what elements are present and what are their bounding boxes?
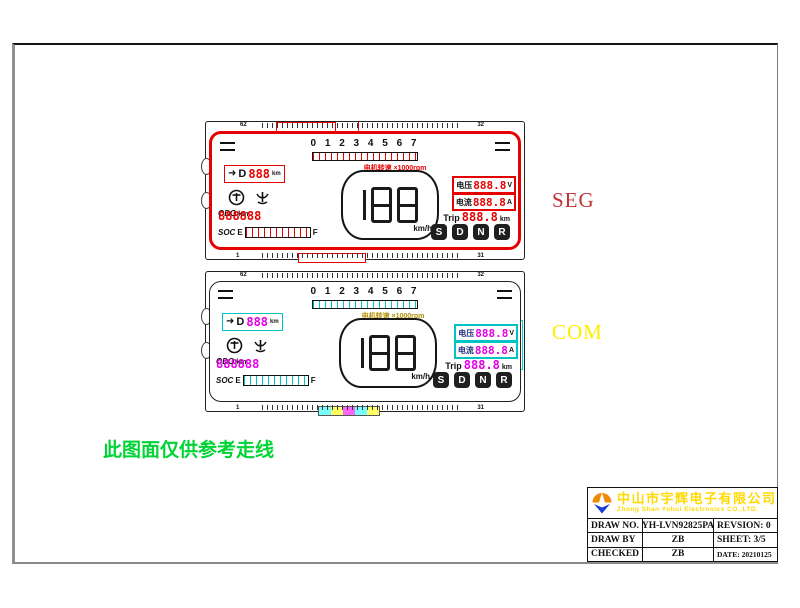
title-row: DRAW NO. YH-LVN92825PA REVSION: 0 — [588, 519, 777, 533]
seven-seg-digit-8 — [397, 187, 418, 223]
indicator-icons — [228, 189, 271, 206]
motor-warning-icon — [254, 189, 271, 206]
voltage-unit: V — [507, 182, 512, 189]
draw-no-value: YH-LVN92825PA — [643, 519, 714, 532]
pin-number: 31 — [477, 253, 484, 259]
gear-box-s: S — [431, 224, 447, 240]
trip-value: 888.8 — [462, 210, 498, 224]
pin-number: 32 — [477, 122, 484, 128]
revision-cell: REVSION: 0 — [714, 519, 777, 532]
speed-display: km/h — [341, 170, 439, 240]
seven-seg-digit-1 — [361, 338, 364, 368]
title-row: CHECKED BY ZB DATE: 20210125 — [588, 548, 777, 561]
soc-bar — [243, 375, 309, 386]
company-header: 中山市宇辉电子有限公司 Zhong Shan Yuhui Electronics… — [588, 488, 777, 518]
assist-gear-display: ➜ D 888 km — [224, 165, 285, 183]
seg-lcd-drawing: 62 32 0 1 2 3 4 5 6 7 ➜ D 888 km 电机转速 ×1… — [205, 121, 525, 260]
headlight-indicator-icon — [226, 337, 243, 354]
pin-number: 1 — [236, 253, 239, 259]
align-mark — [218, 290, 233, 299]
arrow-icon: ➜ — [228, 169, 236, 179]
company-name-en: Zhong Shan Yuhui Electronics CO.,LTD. — [617, 507, 777, 514]
gear-unit: km — [270, 319, 279, 325]
gear-box-r: R — [496, 372, 512, 388]
gear-letter: D — [238, 168, 246, 180]
soc-bar — [245, 227, 311, 238]
odo-label: ODO — [218, 209, 236, 218]
seven-seg-digit-8 — [369, 335, 390, 371]
com-lcd-drawing: 62 32 0 1 2 3 4 5 6 7 ➜ D 888 km 电机转速 ×1… — [205, 271, 525, 412]
trip-display: Trip 888.8 km — [445, 358, 512, 372]
trip-unit: km — [500, 216, 510, 223]
voltage-value: 888.8 — [473, 179, 506, 192]
gear-indicator-row: S D N R — [433, 372, 512, 388]
soc-empty-mark: E — [235, 376, 240, 385]
current-value: 888.8 — [475, 344, 508, 357]
soc-gauge: SOC E F — [216, 375, 316, 386]
seven-seg-digit-1 — [363, 190, 366, 220]
soc-gauge: SOC E F — [218, 227, 318, 238]
align-mark — [497, 290, 512, 299]
checked-by-value: ZB — [643, 548, 714, 561]
bottom-pin-strip — [262, 253, 462, 258]
odometer-display: ODO 888888 km — [216, 357, 246, 366]
trip-value: 888.8 — [464, 358, 500, 372]
top-pin-strip — [262, 123, 462, 128]
soc-label: SOC — [218, 228, 235, 237]
headlight-indicator-icon — [228, 189, 245, 206]
date-cell: DATE: 20210125 — [714, 548, 777, 561]
trip-label: Trip — [443, 213, 460, 223]
current-display: 电流 888.8 A — [452, 193, 516, 211]
draw-by-value: ZB — [643, 533, 714, 546]
pin-number: 62 — [240, 122, 247, 128]
checked-by-label: CHECKED BY — [588, 548, 643, 561]
current-label: 电流 — [456, 197, 472, 208]
gear-box-n: N — [475, 372, 491, 388]
trip-label: Trip — [445, 361, 462, 371]
seg-annotation: SEG — [552, 188, 595, 213]
odometer-display: ODO 888888 km — [218, 209, 248, 218]
draw-no-label: DRAW NO. — [588, 519, 643, 532]
com-annotation: COM — [552, 320, 603, 345]
current-unit: A — [509, 347, 514, 354]
gear-value: 888 — [246, 315, 268, 329]
voltage-unit: V — [509, 330, 514, 337]
title-row: DRAW BY ZB SHEET: 3/5 — [588, 533, 777, 547]
gear-box-n: N — [473, 224, 489, 240]
pin-number: 62 — [240, 272, 247, 278]
speed-unit: km/h — [411, 372, 430, 381]
mode-digit-row: 0 1 2 3 4 5 6 7 — [311, 286, 420, 297]
align-mark — [495, 142, 510, 151]
align-mark — [220, 142, 235, 151]
seven-seg-digit-8 — [371, 187, 392, 223]
bottom-pin-strip — [262, 405, 462, 410]
title-table: DRAW NO. YH-LVN92825PA REVSION: 0 DRAW B… — [588, 518, 777, 561]
sheet-cell: SHEET: 3/5 — [714, 533, 777, 546]
soc-full-mark: F — [313, 228, 318, 237]
indicator-icons — [226, 337, 269, 354]
top-pin-strip — [262, 273, 462, 278]
company-name-cn: 中山市宇辉电子有限公司 — [617, 492, 777, 505]
arrow-icon: ➜ — [226, 317, 234, 327]
current-value: 888.8 — [473, 196, 506, 209]
trip-unit: km — [502, 364, 512, 371]
gear-box-d: D — [454, 372, 470, 388]
power-bar-gauge — [312, 152, 418, 161]
soc-full-mark: F — [311, 376, 316, 385]
gear-letter: D — [236, 316, 244, 328]
voltage-label: 电压 — [456, 180, 472, 191]
speed-display: km/h — [339, 318, 437, 388]
voltage-value: 888.8 — [475, 327, 508, 340]
pin-number: 1 — [236, 405, 239, 411]
odo-unit: km — [238, 211, 248, 218]
gear-box-d: D — [452, 224, 468, 240]
power-bar-gauge — [312, 300, 418, 309]
gear-value: 888 — [248, 167, 270, 181]
soc-label: SOC — [216, 376, 233, 385]
gear-indicator-row: S D N R — [431, 224, 510, 240]
seven-seg-digit-8 — [395, 335, 416, 371]
odo-label: ODO — [216, 357, 234, 366]
title-block: 中山市宇辉电子有限公司 Zhong Shan Yuhui Electronics… — [587, 487, 778, 562]
soc-empty-mark: E — [237, 228, 242, 237]
odo-unit: km — [236, 359, 246, 366]
reference-note: 此图面仅供参考走线 — [103, 435, 274, 462]
lcd-viewport: 0 1 2 3 4 5 6 7 ➜ D 888 km 电机转速 ×1000rpm — [209, 131, 521, 250]
current-label: 电流 — [458, 345, 474, 356]
voltage-label: 电压 — [458, 328, 474, 339]
voltage-display: 电压 888.8 V — [452, 176, 516, 194]
mode-digit-row: 0 1 2 3 4 5 6 7 — [311, 138, 420, 149]
pin-number: 32 — [477, 272, 484, 278]
assist-gear-display: ➜ D 888 km — [222, 313, 283, 331]
gear-box-s: S — [433, 372, 449, 388]
company-names: 中山市宇辉电子有限公司 Zhong Shan Yuhui Electronics… — [617, 492, 777, 514]
company-logo-icon — [590, 491, 614, 515]
gear-box-r: R — [494, 224, 510, 240]
pin-number: 31 — [477, 405, 484, 411]
trip-display: Trip 888.8 km — [443, 210, 510, 224]
speed-unit: km/h — [413, 224, 432, 233]
draw-by-label: DRAW BY — [588, 533, 643, 546]
voltage-display: 电压 888.8 V — [454, 324, 518, 342]
gear-unit: km — [272, 171, 281, 177]
lcd-viewport: 0 1 2 3 4 5 6 7 ➜ D 888 km 电机转速 ×1000rpm — [209, 281, 521, 402]
current-unit: A — [507, 199, 512, 206]
current-display: 电流 888.8 A — [454, 341, 518, 359]
motor-warning-icon — [252, 337, 269, 354]
